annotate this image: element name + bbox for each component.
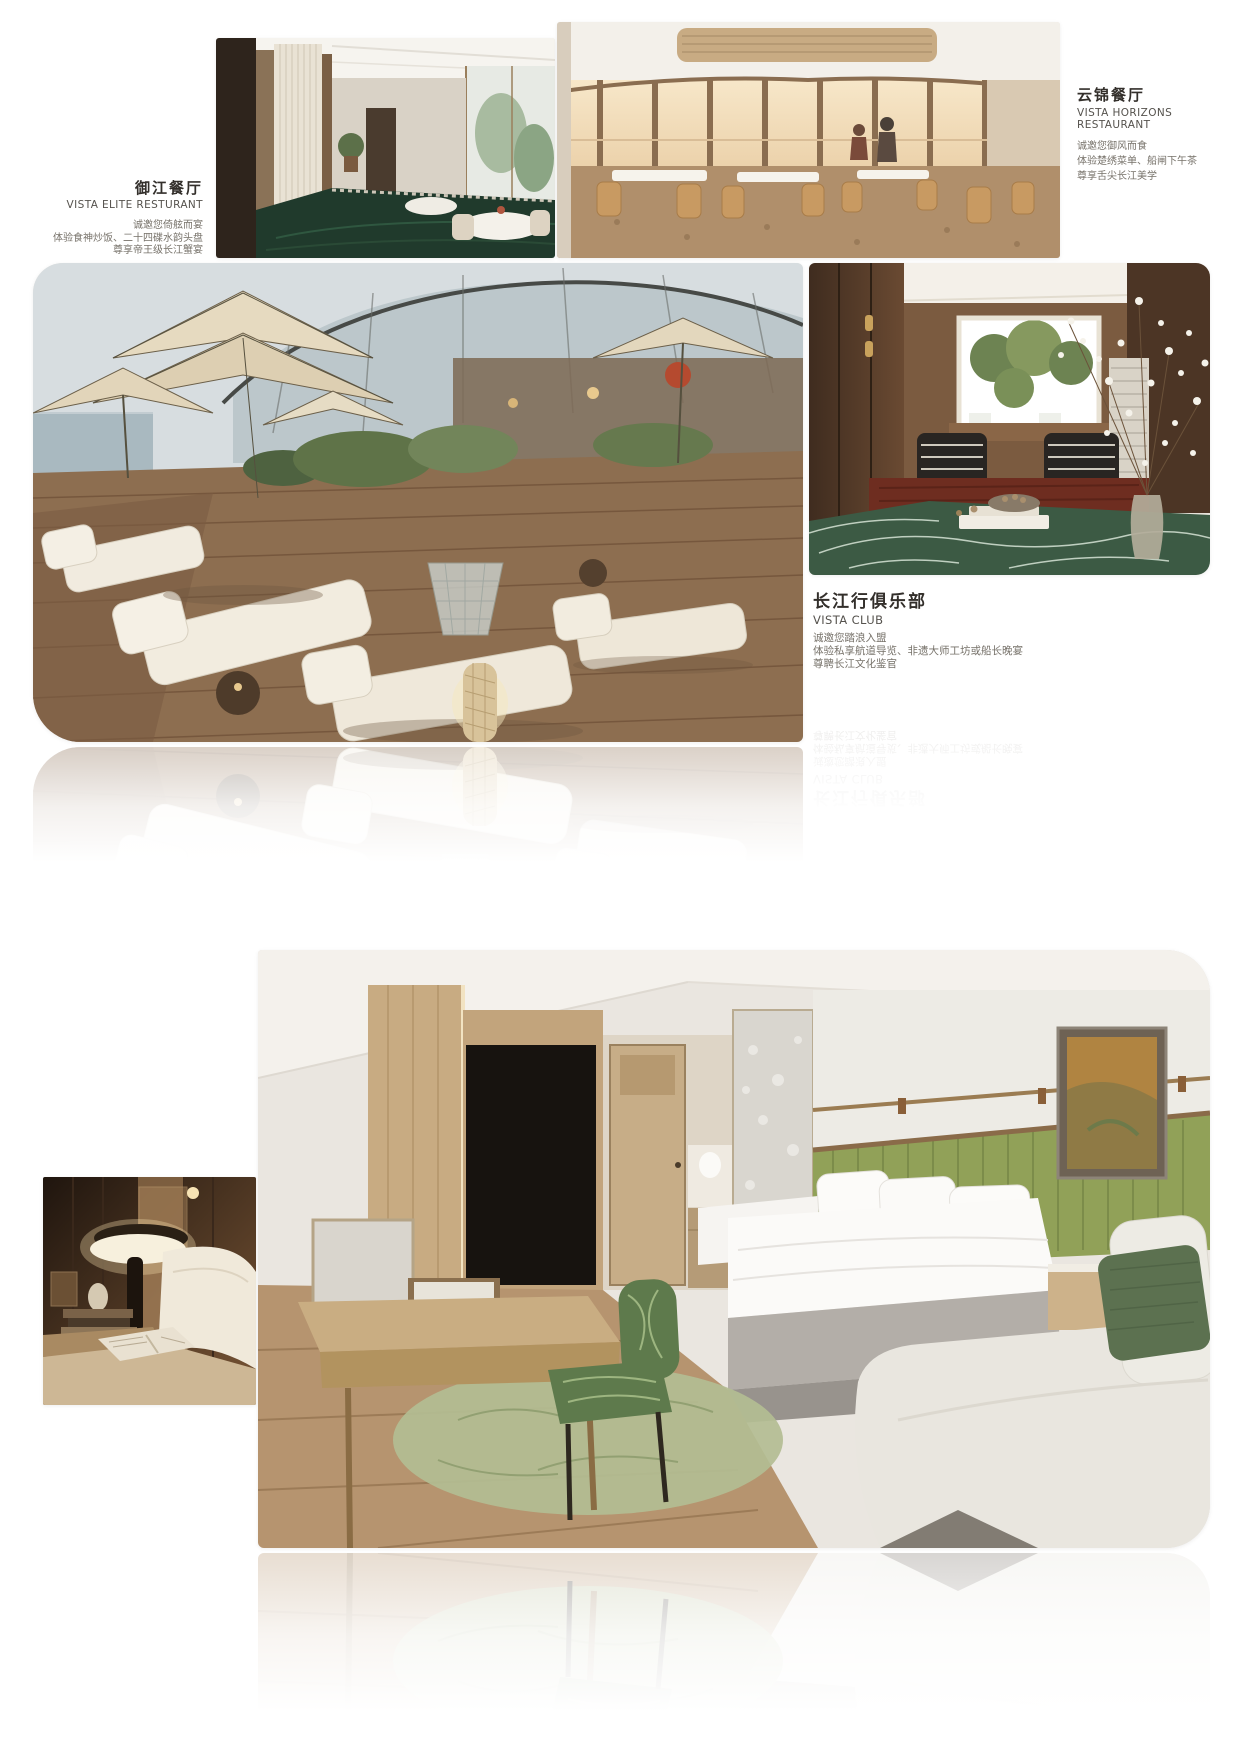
- club-subtitle: VISTA CLUB: [813, 614, 1143, 627]
- vista-club-illustration: [809, 263, 1210, 575]
- deck-terrace-illustration: [33, 263, 803, 742]
- club-caption: 诚邀您踏浪入盟 体验私享航道导览、非遗大师工坊或船长晚宴 尊聘长江文化鉴官: [813, 632, 1143, 672]
- deck-terrace-photo: [33, 263, 803, 742]
- club-caption-line: 诚邀您踏浪入盟: [813, 632, 1143, 645]
- cabin-reflection: [258, 1553, 1210, 1725]
- horizons-restaurant-photo: [557, 22, 1060, 258]
- elite-caption-line: 尊享帝王级长江蟹宴: [33, 245, 203, 258]
- horizons-caption-line: 体验楚绣菜单、船闸下午茶: [1077, 154, 1205, 169]
- horizons-subtitle-1: VISTA HORIZONS: [1077, 107, 1205, 119]
- club-caption-line: 尊聘长江文化鉴官: [813, 658, 1143, 671]
- club-text-reflection: 长江行俱乐部 VISTA CLUB 诚邀您踏浪入盟 体验私享航道导览、非遗大师工…: [813, 728, 1143, 812]
- elite-title: 御江餐厅: [33, 179, 203, 197]
- bedside-lamp-photo: [43, 1177, 256, 1405]
- cabin-room-illustration: [258, 950, 1210, 1548]
- vista-club-text: 长江行俱乐部 VISTA CLUB 诚邀您踏浪入盟 体验私享航道导览、非遗大师工…: [813, 592, 1143, 671]
- horizons-subtitle-2: RESTAURANT: [1077, 119, 1205, 131]
- elite-caption-line: 诚邀您倚舷而宴: [33, 220, 203, 233]
- deck-reflection-fade: [33, 747, 803, 872]
- horizons-restaurant-text: 云锦餐厅 VISTA HORIZONS RESTAURANT 诚邀您御风而食 体…: [1077, 86, 1205, 184]
- elite-restaurant-illustration: [216, 38, 555, 258]
- horizons-caption-line: 尊享舌尖长江美学: [1077, 169, 1205, 184]
- horizons-caption: 诚邀您御风而食 体验楚绣菜单、船闸下午茶 尊享舌尖长江美学: [1077, 139, 1205, 184]
- horizons-title: 云锦餐厅: [1077, 86, 1205, 104]
- elite-restaurant-photo: [216, 38, 555, 258]
- brochure-page: 御江餐厅 VISTA ELITE RESTURANT 诚邀您倚舷而宴 体验食神炒…: [0, 0, 1241, 1755]
- cabin-room-photo: [258, 950, 1210, 1548]
- cabin-reflection-fade: [258, 1553, 1210, 1725]
- elite-subtitle: VISTA ELITE RESTURANT: [33, 199, 203, 211]
- horizons-caption-line: 诚邀您御风而食: [1077, 139, 1205, 154]
- vista-club-photo: [809, 263, 1210, 575]
- elite-caption-line: 体验食神炒饭、二十四碟水韵头盘: [33, 233, 203, 246]
- elite-caption: 诚邀您倚舷而宴 体验食神炒饭、二十四碟水韵头盘 尊享帝王级长江蟹宴: [33, 220, 203, 258]
- deck-reflection: [33, 747, 803, 872]
- club-text-reflection-fade: [813, 728, 1143, 812]
- club-caption-line: 体验私享航道导览、非遗大师工坊或船长晚宴: [813, 645, 1143, 658]
- horizons-restaurant-illustration: [557, 22, 1060, 258]
- bedside-lamp-illustration: [43, 1177, 256, 1405]
- elite-restaurant-text: 御江餐厅 VISTA ELITE RESTURANT 诚邀您倚舷而宴 体验食神炒…: [33, 179, 203, 258]
- club-title: 长江行俱乐部: [813, 592, 1143, 612]
